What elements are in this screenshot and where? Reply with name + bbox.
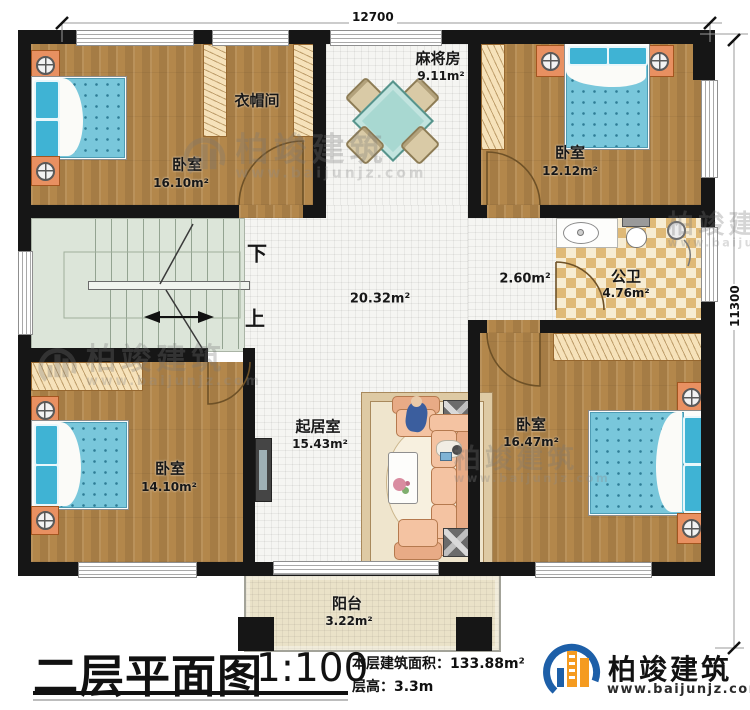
room-label-living: 起居室 [295,416,340,437]
brand-website: www.baijunjz.com [607,682,750,697]
room-label-cloakroom: 衣帽间 [234,90,279,111]
area-corridor: 2.60m² [499,272,550,287]
room-label-bedroom-tl: 卧室 [172,154,202,175]
floor-corridor [468,218,556,320]
pillow [568,46,609,66]
lamp-icon [36,162,55,181]
balcony-sliding-door [273,561,439,575]
door-opening [487,205,540,218]
dim-tick [728,34,740,46]
dimension-right-value: 11300 [728,284,742,330]
nightstand [31,156,60,186]
pillow [34,464,59,506]
wardrobe [203,44,227,137]
room-area-bathroom: 4.76m² [602,286,649,300]
wall-interior [313,44,326,205]
armchair [398,519,438,547]
wall-interior [540,205,701,218]
tv-screen [259,450,267,490]
dimension-top-value: 12700 [349,10,397,24]
room-label-bedroom-tr: 卧室 [555,142,585,163]
stairs-rail [88,281,250,290]
toilet-tank [622,217,650,227]
brand-logo-icon [543,641,603,701]
room-area-balcony: 3.22m² [325,614,372,628]
room-label-bedroom-br: 卧室 [516,414,546,435]
toilet-bowl [626,227,647,248]
coffee-table [388,452,418,504]
window [330,30,442,46]
lamp-icon [650,52,669,71]
wall-interior [243,348,255,562]
door-opening [239,205,303,218]
wall-interior [18,348,208,362]
wall-corner-pillar [693,44,715,80]
room-area-mahjong: 9.11m² [417,69,464,83]
wall-interior [468,333,480,562]
room-label-mahjong: 麻将房 [415,48,460,69]
pillow [607,46,648,66]
flower-decor [393,478,406,491]
pillow [34,424,59,466]
plan-title: 二层平面图 [33,640,263,705]
dim-tick [56,17,68,29]
room-area-living: 15.43m² [292,437,348,451]
wall-interior [468,205,487,218]
room-area-bedroom-tr: 12.12m² [542,164,598,178]
floor-area-label: 本层建筑面积： [352,656,450,672]
balcony-pillar [456,617,492,651]
window [212,30,289,46]
wall-interior [468,44,481,205]
window [76,30,194,46]
window [535,562,652,578]
sofa-cushion [431,467,457,505]
wardrobe [481,44,505,150]
sink-drain-icon [577,229,584,236]
lamp-icon [36,56,55,75]
shower-head [667,221,686,240]
stairs-upper-flight [95,219,243,283]
window [701,80,718,178]
wall-interior [303,205,326,218]
title-underline [33,691,348,695]
lamp-icon [682,519,701,538]
door-opening [487,320,540,333]
person-head [411,396,422,407]
floor-plan-canvas: 12700 11300 卧室 16.10m² 衣帽间 麻将房 9.11m² 卧室… [0,0,750,710]
person-head [452,445,462,455]
side-table [443,528,470,557]
stairs-down-label: 下 [247,238,267,267]
window [78,562,197,578]
wardrobe [31,362,143,391]
lamp-icon [36,511,55,530]
window [701,227,718,302]
room-area-bedroom-br: 16.47m² [503,435,559,449]
room-label-balcony: 阳台 [332,593,362,614]
stairs-lower-flight [110,289,243,349]
area-hall: 20.32m² [350,292,410,307]
floor-height-value: 3.3m [394,679,433,695]
floor-height-info: 层高：3.3m [352,676,433,696]
floor-area-value: 133.88m² [450,656,525,672]
room-label-bathroom: 公卫 [611,266,641,287]
balcony-pillar [238,617,274,651]
wall-interior [31,205,239,218]
stairs-up-label: 上 [245,303,265,332]
lamp-icon [682,388,701,407]
laptop-icon [440,452,452,461]
window [18,251,33,335]
wardrobe [553,333,702,361]
title-underline-2 [33,699,348,701]
lamp-icon [541,52,560,71]
floor-height-label: 层高： [352,679,394,695]
room-area-bedroom-bl: 14.10m² [141,480,197,494]
floor-area-info: 本层建筑面积：133.88m² [352,653,525,673]
wardrobe [293,44,315,137]
dim-tick [704,17,716,29]
pillow [34,80,60,120]
wall-interior [468,320,487,333]
nightstand [536,45,565,77]
wall-interior [540,320,701,333]
lamp-icon [36,401,55,420]
room-area-bedroom-tl: 16.10m² [153,176,209,190]
pillow [34,119,60,159]
room-label-bedroom-bl: 卧室 [155,458,185,479]
nightstand [31,506,59,535]
